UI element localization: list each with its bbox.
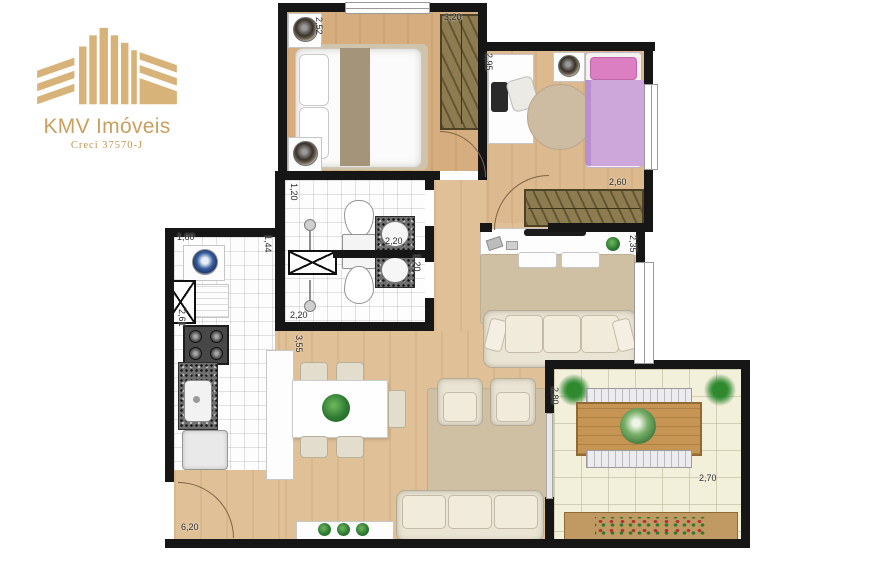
dim-label: 2,60 [609, 178, 627, 188]
logo-subtitle: Creci 37570-J [28, 140, 186, 151]
wall [165, 228, 174, 482]
sofa-cushion [494, 495, 538, 529]
dining-bench [388, 390, 406, 428]
armchair [490, 378, 536, 426]
window [345, 2, 430, 14]
laundry-tank [193, 284, 229, 318]
faucet-icon [193, 396, 200, 403]
wall [485, 42, 655, 51]
wall [275, 322, 434, 331]
burner-icon [210, 330, 223, 343]
sofa-cushion [543, 315, 581, 353]
plant-icon [337, 523, 350, 536]
round-rug [527, 84, 593, 150]
wall [425, 226, 434, 262]
dim-label: 1,60 [177, 233, 195, 243]
bed-blanket [585, 80, 646, 166]
refrigerator [182, 430, 228, 470]
shower-head-icon [304, 219, 316, 231]
sofa [396, 490, 544, 542]
burner-icon [210, 347, 223, 360]
armchair-cushion [443, 392, 477, 422]
console-plant-icon [606, 237, 620, 251]
burner-icon [189, 330, 202, 343]
sofa-cushion [505, 315, 543, 353]
wardrobe [440, 14, 482, 130]
dim-label: 6,20 [181, 523, 199, 533]
pillow [590, 57, 637, 80]
dim-label: 2,35 [627, 235, 637, 253]
toilet [344, 266, 374, 304]
armchair-cushion [496, 392, 530, 422]
wall [278, 171, 440, 180]
dim-label: 2,20 [290, 311, 308, 321]
wall [545, 497, 554, 539]
potted-plant-icon [704, 374, 736, 406]
window [644, 84, 658, 170]
dining-chair [336, 436, 364, 458]
window [634, 262, 654, 364]
wall [480, 223, 492, 232]
dim-label: 3,20 [444, 13, 462, 23]
dim-label: 2,52 [313, 17, 323, 35]
wall [165, 539, 750, 548]
pillow [299, 54, 329, 106]
kmv-logo: KMV Imóveis Creci 37570-J [28, 26, 186, 151]
dim-label: 3,55 [293, 335, 303, 353]
armchair [437, 378, 483, 426]
sofa-cushion [448, 495, 492, 529]
sink-basin [381, 257, 409, 283]
floorplan-page: KMV Imóveis Creci 37570-J [0, 0, 887, 565]
flower-planter [564, 512, 738, 540]
dim-label: 1,20 [288, 183, 298, 201]
sofa-cushion [402, 495, 446, 529]
dim-label: 2,61 [176, 309, 186, 327]
pouf [518, 252, 557, 268]
burner-icon [189, 347, 202, 360]
wall [278, 3, 287, 180]
washer-drum-icon [192, 249, 218, 275]
dim-label: 2,20 [385, 237, 403, 247]
logo-title: KMV Imóveis [28, 115, 186, 139]
buildings-icon [32, 26, 182, 108]
kitchen-peninsula [266, 350, 294, 480]
decor-item [506, 241, 518, 250]
centerpiece-plant-icon [620, 408, 656, 444]
toilet-tank [342, 234, 376, 251]
pouf [561, 252, 600, 268]
dim-label: 1,44 [262, 235, 272, 253]
wall [741, 360, 750, 548]
dim-label: 1,20 [411, 254, 421, 272]
dim-label: 2,70 [699, 474, 717, 484]
plant-icon [318, 523, 331, 536]
wall [275, 171, 285, 331]
duct-shaft [288, 250, 337, 275]
stove [183, 325, 229, 365]
dim-label: 2,95 [483, 53, 493, 71]
flowers-icon [595, 517, 707, 535]
plant-icon [356, 523, 369, 536]
balcony-bench [586, 450, 692, 468]
table-plant-icon [322, 394, 350, 422]
lamp-icon [293, 141, 318, 166]
bed-runner [340, 48, 370, 166]
sliding-door [546, 413, 553, 499]
dining-chair [300, 436, 328, 458]
lamp-icon [558, 55, 580, 77]
dim-label: 2,80 [549, 387, 559, 405]
wall [425, 171, 434, 190]
